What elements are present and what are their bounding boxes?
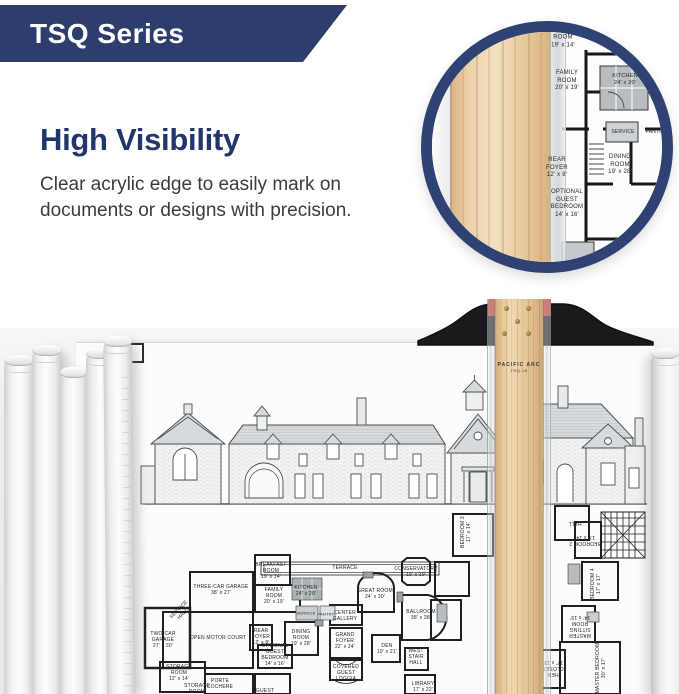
tsquare-blade: PACIFIC ARC TSQ-18 [487,299,551,694]
tube-cap [651,348,679,359]
brass-screw [526,331,531,336]
room-label: STORAGE ROOM 12' x 14' [166,664,192,682]
brass-screw [502,331,507,336]
room-label: TWO-CAR GARAGE 27' x 30' [150,631,175,649]
blade-wood: PACIFIC ARC TSQ-18 [495,299,543,694]
room-label: CONSERVATORY 19' x 19' [394,566,437,578]
inset-paper-edge [432,32,452,262]
room-label: OPEN MOTOR COURT [190,635,246,641]
room-label: OPTIONAL GUEST BEDROOM 14' x 16' [261,643,288,667]
room-label: MASTER SITTING ROOM 14' x 19' [569,614,591,638]
feature-description: Clear acrylic edge to easily mark on doc… [40,172,362,223]
inset-wood-blade [450,32,550,262]
room-label: GRAND FOYER 22' x 24' [335,632,355,650]
rolled-blueprint-tube [103,337,136,694]
inset-room-label: KITCHEN 24' x 20' [612,73,638,87]
inset-room-label: ROOM 19' x 14' [551,35,575,50]
room-label: SERVICE [297,612,316,617]
tube-cap [103,336,132,347]
tube-ring [32,357,62,363]
inset-room-label: PANTRY [645,129,666,135]
room-label: DEN 19' x 21' [377,643,397,655]
blade-printing: PACIFIC ARC TSQ-18 [495,362,543,373]
floor-plan-drawing [135,500,657,694]
room-label: GUEST [256,688,274,694]
room-label: MASTER BEDROOM 30' x 17' [595,643,607,694]
tube-cap [60,367,88,378]
room-label: DINING ROOM 19' x 28' [291,629,311,647]
room-label: BEDROOM 2 17' x 14' [569,534,601,546]
brass-screw [504,306,509,311]
feature-title: High Visibility [40,122,240,158]
room-label: CENTER GALLERY [333,610,357,622]
model-number: TSQ-18 [495,368,543,373]
tube-ring [651,360,679,366]
acrylic-edge-right [543,299,551,694]
house-elevation-drawing [133,368,655,508]
room-label: LIBRARY 17' x 22' [412,681,435,693]
brass-screw [515,319,520,324]
inset-room-label: DINING ROOM 19' x 28' [608,154,632,177]
tube-drawing-marks [122,377,132,694]
room-label: FAMILY ROOM 20' x 19' [264,587,284,605]
room-label: BEDROOM 4 17' x 17' [590,568,602,600]
room-label: WEST STAIR HALL [408,648,423,666]
tube-cap [32,345,62,356]
room-label: BEDROOM 3 17' x 14' [460,516,472,548]
rolled-blueprint-tube [60,368,88,694]
room-label: THREE-CAR GARAGE 38' x 27' [193,584,248,596]
inset-acrylic-edge [550,32,566,262]
rolled-blueprint-tube [32,346,62,694]
inset-room-label: FAMILY ROOM 20' x 19' [555,70,579,93]
tube-ring [103,348,132,354]
room-label: HALL [568,520,581,526]
rolled-blueprint-tube [651,349,679,694]
acrylic-edge-left [487,299,495,694]
inset-room-label: OPTIONAL GUEST BEDROOM 14' x 16' [551,189,583,219]
series-banner-label: TSQ Series [0,5,347,62]
rolled-blueprint-tube [4,356,35,694]
tube-ring [4,367,35,373]
product-image: TSQ Series High Visibility Clear acrylic… [0,0,679,694]
inset-room-label: SERVICE [611,129,634,135]
room-label: BREAKFAST ROOM 19' x 14' [255,562,286,580]
tube-cap [4,355,35,366]
room-label: TERRACE [332,565,357,571]
brass-screw [526,306,531,311]
magnifier-inset: ROOM 19' x 14' FAMILY ROOM 20' x 19' KIT… [421,21,673,273]
room-label: GREAT ROOM 24' x 30' [357,588,393,600]
room-label: PORTE COCHERE [207,678,233,690]
room-label: KITCHEN 24' x 20' [294,585,317,597]
room-label: BALLROOM 38' x 38' [406,609,435,621]
room-label: COVERED GUEST LOGGIA [333,664,359,682]
series-banner: TSQ Series [0,5,347,62]
inset-room-label: REAR FOYER 12' x 8' [546,157,568,180]
